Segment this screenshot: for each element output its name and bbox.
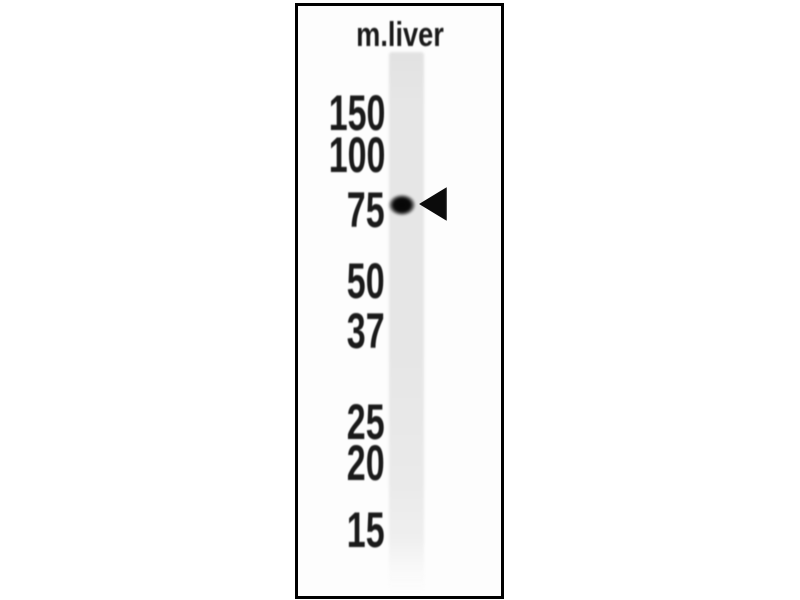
blot-panel: m.liver 150100755037252015 bbox=[295, 3, 504, 599]
marker-15: 15 bbox=[347, 505, 385, 555]
marker-37: 37 bbox=[347, 306, 385, 356]
marker-75: 75 bbox=[347, 185, 385, 235]
lane-label: m.liver bbox=[332, 16, 468, 55]
marker-50: 50 bbox=[347, 256, 385, 306]
marker-100: 100 bbox=[328, 130, 385, 180]
lane-strip bbox=[389, 52, 424, 592]
marker-20: 20 bbox=[347, 438, 385, 488]
protein-band bbox=[388, 194, 416, 216]
